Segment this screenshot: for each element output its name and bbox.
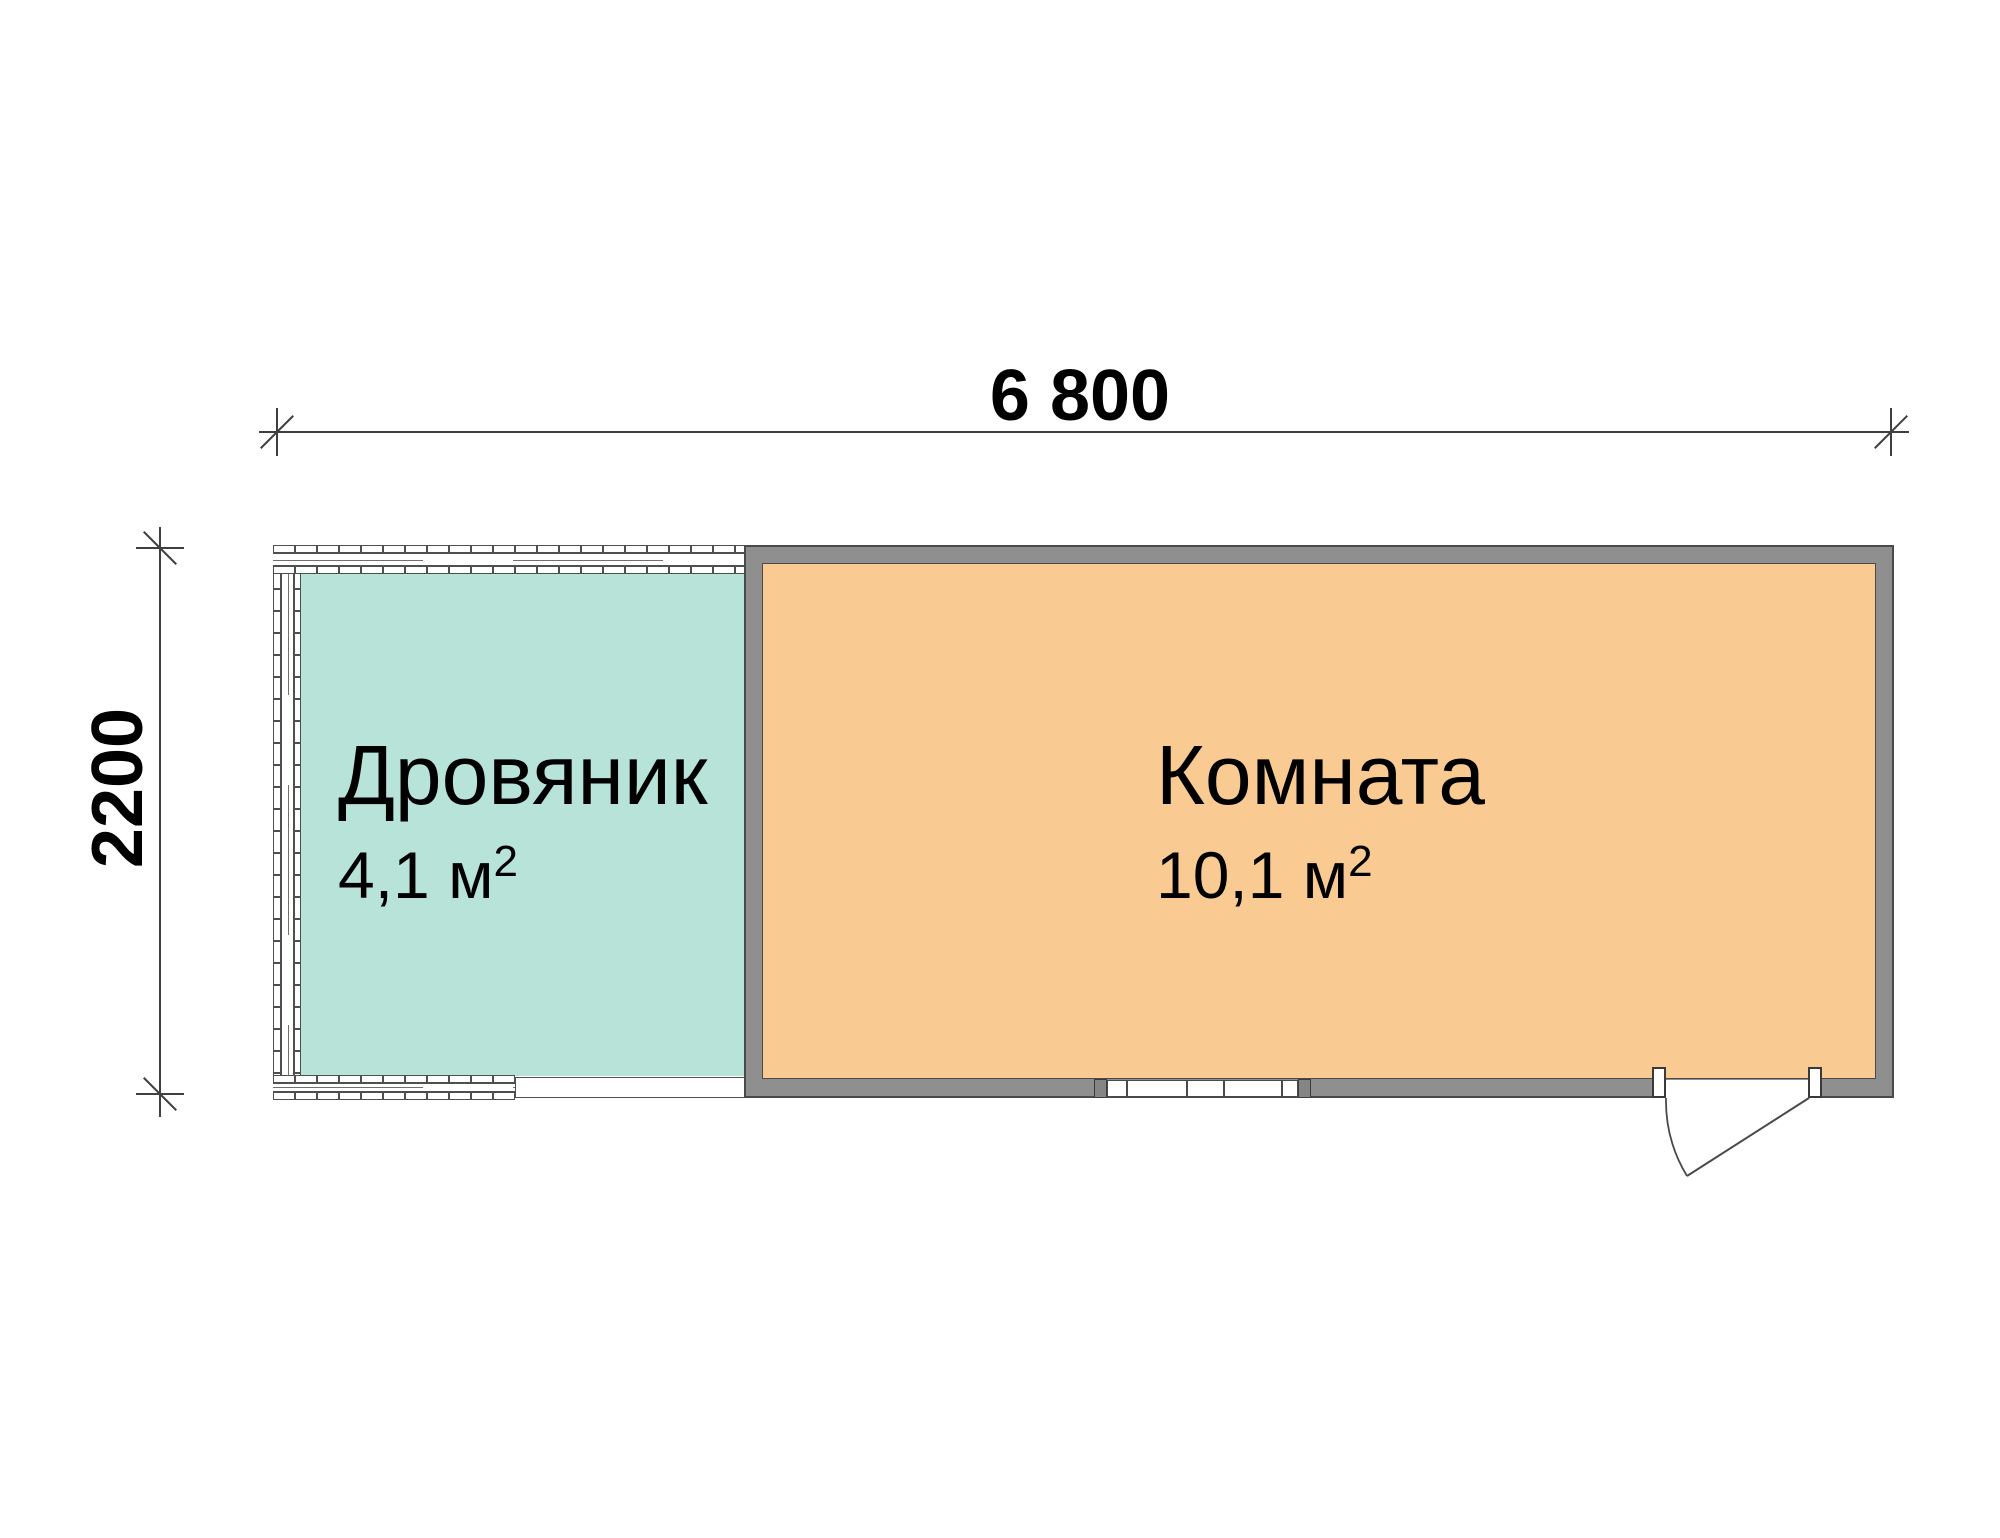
woodshed-wall-left-board (281, 545, 294, 1099)
room-woodshed-area: 4,1 м2 (338, 840, 518, 908)
window-mullion (1281, 1081, 1283, 1096)
room-main-area-value: 10,1 м (1156, 838, 1348, 912)
woodshed-wall-top-board (273, 553, 745, 566)
dimension-left-label: 2200 (82, 708, 154, 868)
door-right-jamb (1808, 1067, 1822, 1098)
woodshed-wall-bottom-outer-battens (273, 1092, 515, 1100)
woodshed-wall-left-outer-battens (273, 545, 281, 1099)
window-mullion (1186, 1081, 1188, 1096)
room-main-area: 10,1 м2 (1156, 840, 1373, 908)
dimension-left-line (159, 527, 161, 1117)
window-glazing (1107, 1080, 1298, 1097)
room-woodshed-area-value: 4,1 м (338, 838, 493, 912)
window-mullion (1126, 1081, 1128, 1096)
woodshed-wall-bottom-inner-battens (273, 1075, 515, 1083)
woodshed-front-opening (515, 1077, 746, 1098)
window-left-post (1094, 1079, 1107, 1098)
window-right-post (1298, 1079, 1311, 1098)
floor-plan: 6 800 2200 (0, 0, 2000, 1538)
woodshed-wall-top-inner-battens (273, 566, 745, 574)
door-opening (1666, 1080, 1808, 1100)
window-mullion (1223, 1081, 1225, 1096)
woodshed-floor (299, 572, 745, 1076)
room-woodshed-label: Дровяник (338, 733, 708, 817)
door-left-jamb (1652, 1067, 1666, 1098)
woodshed-wall-top-outer-battens (273, 545, 745, 553)
dimension-top-label: 6 800 (990, 360, 1170, 432)
woodshed-wall-left-inner-battens (294, 545, 301, 1099)
room-main-area-sup: 2 (1348, 837, 1372, 886)
door-swing-arc (1666, 1098, 1687, 1176)
room-woodshed-area-sup: 2 (493, 837, 517, 886)
room-main-label: Комната (1156, 733, 1485, 817)
door-leaf (1687, 1098, 1809, 1176)
woodshed-wall-bottom-board (273, 1083, 515, 1092)
